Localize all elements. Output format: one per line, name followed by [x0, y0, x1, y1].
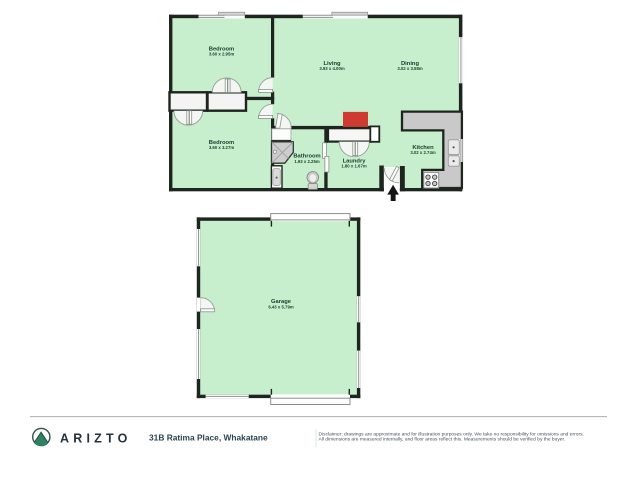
svg-text:ARIZTO: ARIZTO	[60, 432, 132, 446]
svg-text:6.43 x 5.79m: 6.43 x 5.79m	[268, 305, 294, 310]
svg-text:3.93 x 4.00m: 3.93 x 4.00m	[319, 66, 345, 71]
svg-text:3.60 x 2.95m: 3.60 x 2.95m	[209, 52, 235, 57]
svg-text:3.60 x 3.27m: 3.60 x 3.27m	[209, 145, 235, 150]
svg-text:3.02 x 2.74m: 3.02 x 2.74m	[410, 150, 436, 155]
svg-text:3.02 x 3.58m: 3.02 x 3.58m	[397, 66, 423, 71]
svg-text:1.80 x 1.67m: 1.80 x 1.67m	[341, 164, 367, 169]
svg-text:All dimensions are measured in: All dimensions are measured internally, …	[319, 436, 566, 442]
svg-text:1.93 x 2.25m: 1.93 x 2.25m	[294, 159, 320, 164]
svg-text:31B Ratima Place, Whakatane: 31B Ratima Place, Whakatane	[149, 432, 268, 442]
